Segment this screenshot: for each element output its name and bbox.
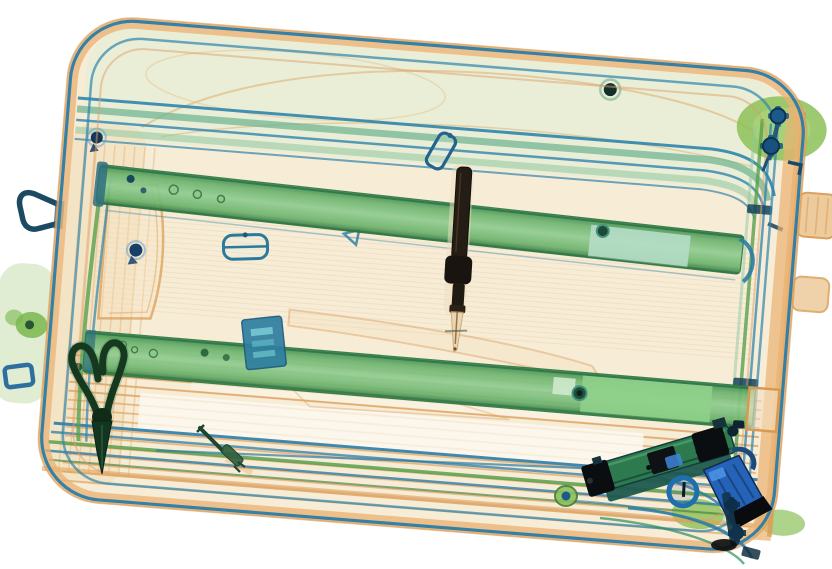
xray-scan-image [0,0,832,569]
gun-hammer-spur [733,420,744,429]
foot-stud [555,486,577,506]
mag-shadow [711,539,737,551]
strap-buckle-left [223,232,268,260]
rail-grommet [596,224,609,237]
knife-guard [444,255,473,285]
luggage-tag [241,316,286,370]
corner-bracket [741,546,761,560]
xray-scan-viewport [0,0,832,569]
rail-end-frame [746,387,779,431]
rail-grommet [572,386,587,401]
